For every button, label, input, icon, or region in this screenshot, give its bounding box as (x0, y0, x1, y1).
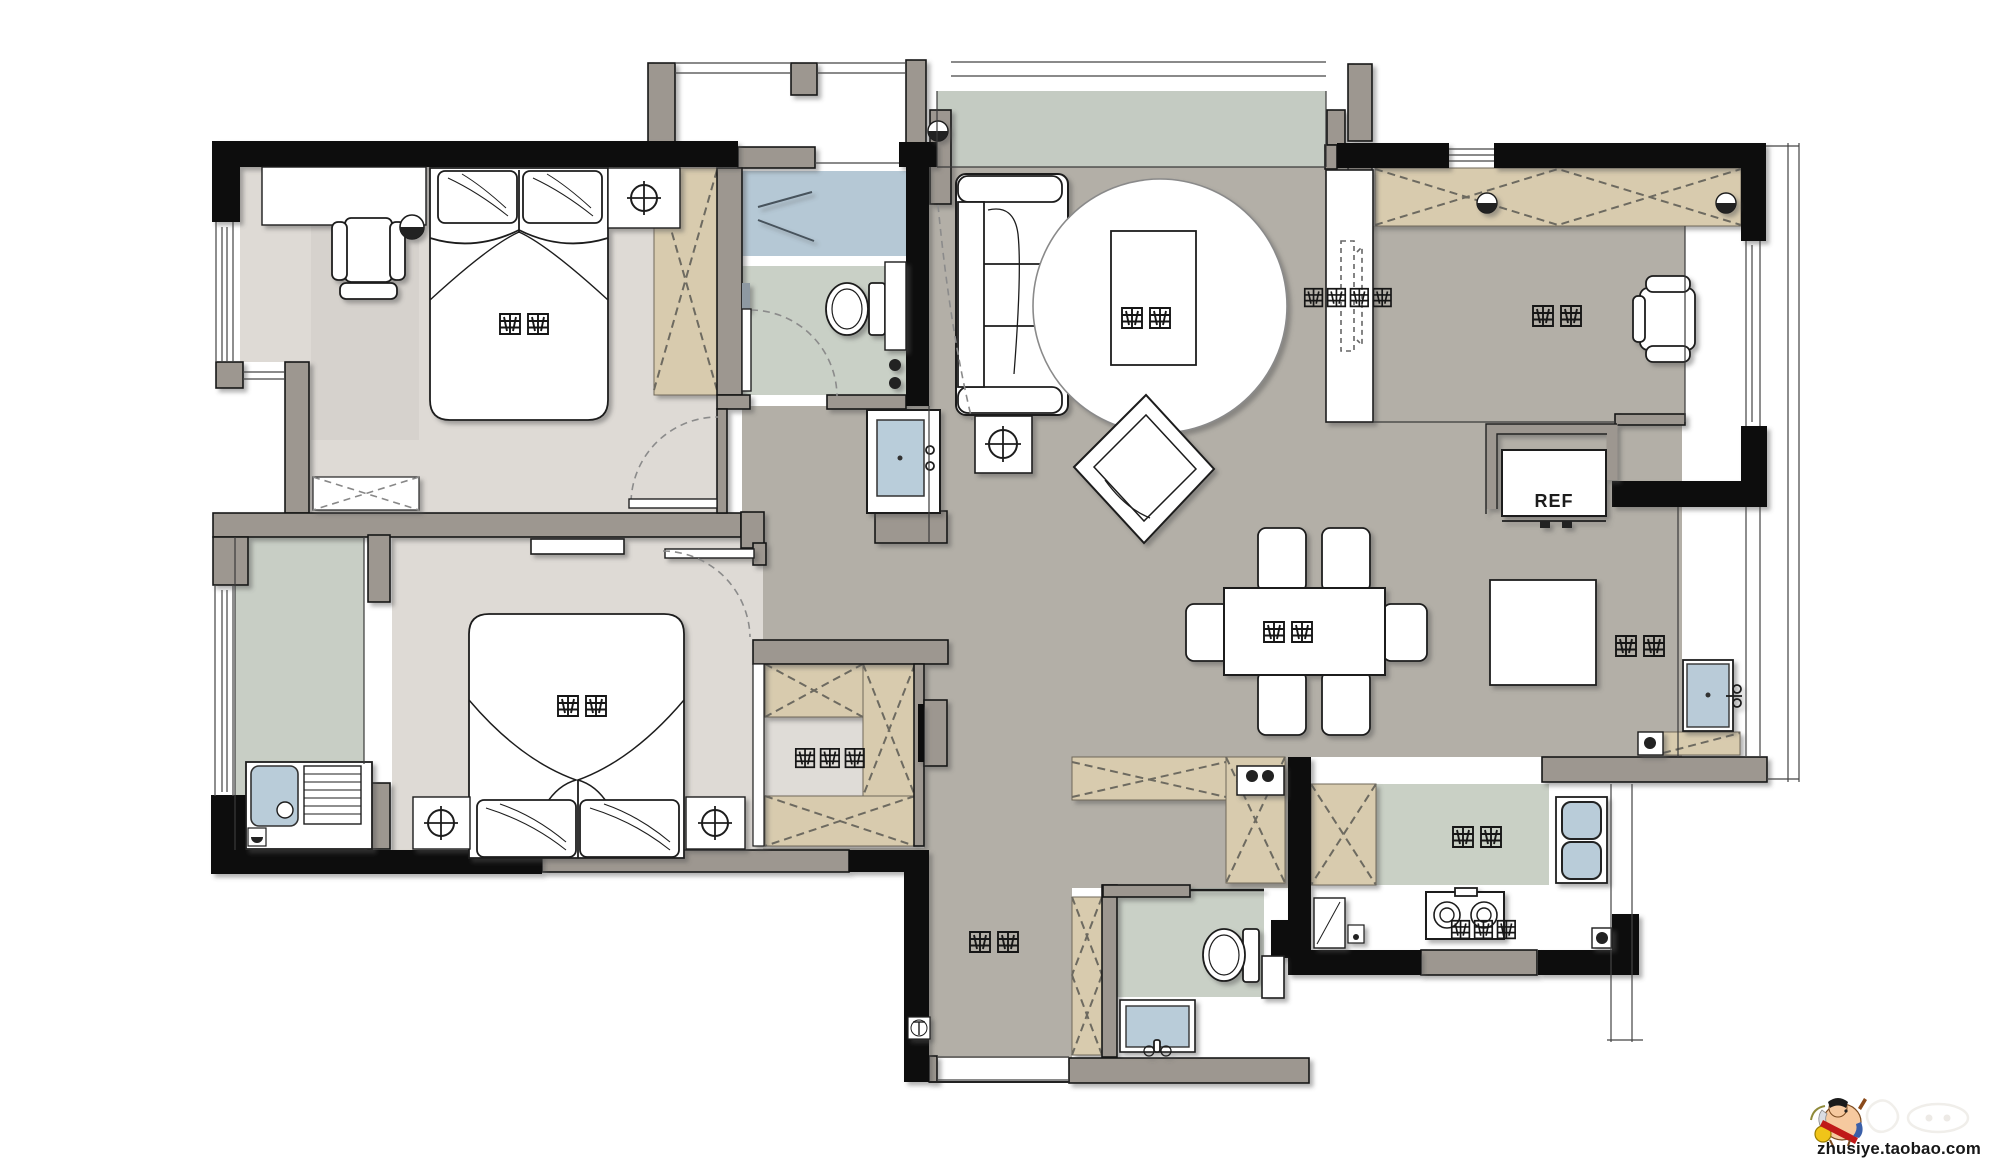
svg-text:REF: REF (1535, 491, 1574, 511)
svg-text:zhusiye.taobao.com: zhusiye.taobao.com (1817, 1139, 1981, 1158)
